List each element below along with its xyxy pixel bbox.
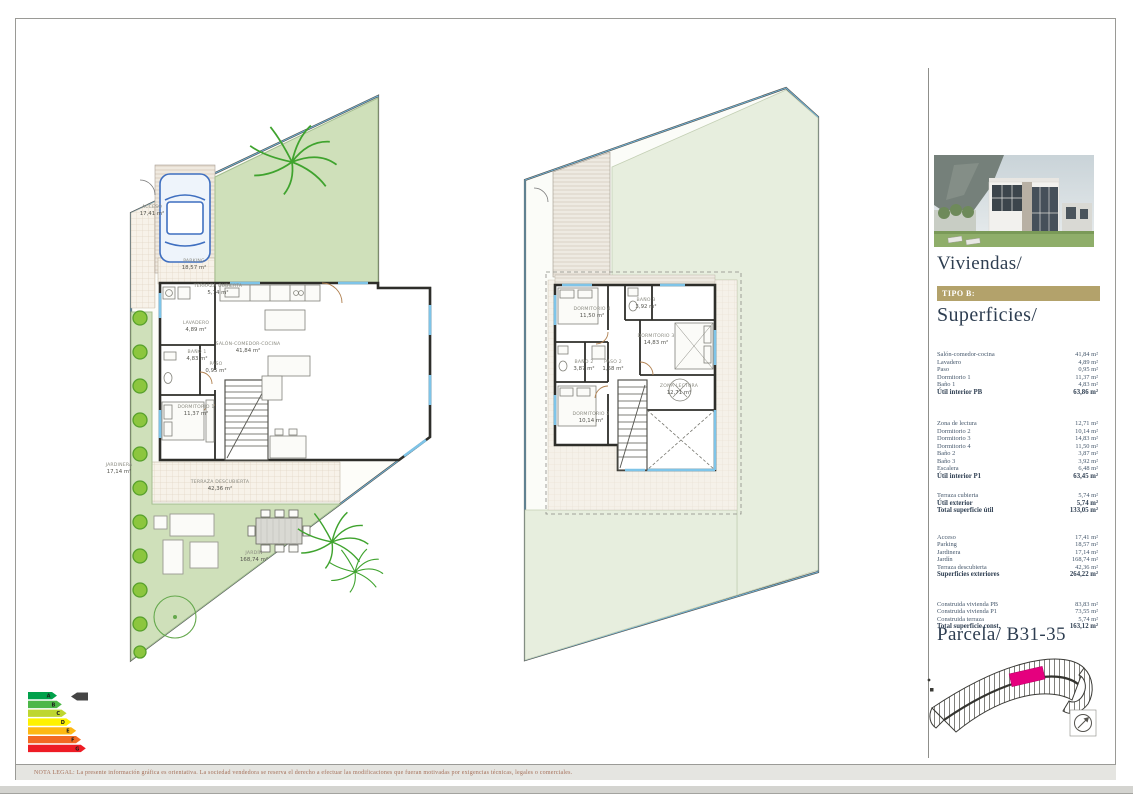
surface-row-total: Superficies exteriores264,22 m² bbox=[937, 571, 1098, 579]
surface-value: 4,83 m² bbox=[1078, 381, 1098, 389]
room-label-bano1: BAÑO 1 4,83 m² bbox=[186, 350, 207, 362]
room-name: BAÑO 1 bbox=[186, 350, 207, 356]
room-name: PARKING bbox=[182, 259, 207, 265]
ground-floor-plan bbox=[100, 80, 450, 680]
room-label-bano3: BAÑO 3 3,92 m² bbox=[635, 298, 656, 310]
garden-bottom bbox=[525, 510, 737, 660]
room-area: 11,37 m² bbox=[177, 411, 214, 417]
surface-label: Baño 2 bbox=[937, 450, 955, 458]
room-name: SALÓN-COMEDOR-COCINA bbox=[216, 342, 281, 348]
surface-value: 63,45 m² bbox=[1073, 473, 1098, 481]
room-label-zona-lectura: ZONA LECTURA 12,71 m² bbox=[660, 384, 698, 396]
surface-label: Total superficie útil bbox=[937, 507, 993, 515]
access-path bbox=[131, 202, 155, 308]
surface-row-total: Útil interior P163,45 m² bbox=[937, 473, 1098, 481]
staircase bbox=[618, 380, 647, 470]
room-area: 0,95 m² bbox=[205, 368, 226, 374]
surface-value: 41,84 m² bbox=[1075, 351, 1098, 359]
surface-row: Dormitorio 111,37 m² bbox=[937, 374, 1098, 382]
room-label-paso2: PASO 2 1,58 m² bbox=[602, 360, 623, 372]
surface-row: Parking18,57 m² bbox=[937, 541, 1098, 549]
room-label-jardin: JARDÍN 168,74 m² bbox=[240, 551, 268, 563]
bottom-band bbox=[0, 786, 1133, 794]
surface-row: Dormitorio 210,14 m² bbox=[937, 428, 1098, 436]
rating-pointer-icon bbox=[71, 693, 88, 701]
surface-value: 168,74 m² bbox=[1072, 556, 1098, 564]
surface-label: Lavadero bbox=[937, 359, 961, 367]
room-name: DORMITORIO 4 bbox=[573, 307, 610, 313]
svg-text:D: D bbox=[61, 720, 65, 726]
upper-terrace-strip bbox=[555, 275, 715, 284]
room-area: 168,74 m² bbox=[240, 557, 268, 563]
room-name: ACCESO bbox=[140, 205, 165, 211]
room-name: PASO 2 bbox=[602, 360, 623, 366]
surface-row: Zona de lectura12,71 m² bbox=[937, 420, 1098, 428]
room-label-terraza-cubierta: TERRAZA CUBIERTA 5,74 m² bbox=[194, 284, 242, 296]
gate-arc bbox=[140, 180, 155, 195]
parcela-title: Parcela/ B31-35 bbox=[937, 624, 1066, 646]
svg-text:E: E bbox=[66, 729, 70, 735]
energy-bar-a bbox=[28, 692, 57, 699]
site-marker bbox=[930, 688, 934, 692]
room-area: 4,83 m² bbox=[186, 356, 207, 362]
room-label-parking: PARKING 18,57 m² bbox=[182, 259, 207, 271]
room-area: 42,36 m² bbox=[191, 486, 249, 492]
surface-value: 17,14 m² bbox=[1075, 549, 1098, 557]
room-label-dormitorio3: DORMITORIO 3 14,83 m² bbox=[637, 334, 674, 346]
svg-text:F: F bbox=[71, 738, 74, 744]
svg-text:B: B bbox=[51, 702, 55, 708]
surface-value: 163,12 m² bbox=[1070, 623, 1098, 631]
surface-value: 264,22 m² bbox=[1070, 571, 1098, 579]
surface-row: Dormitorio 411,50 m² bbox=[937, 443, 1098, 451]
surfaces-section-parcela: Acceso17,41 m² Parking18,57 m² Jardinera… bbox=[937, 534, 1098, 579]
room-label-salon: SALÓN-COMEDOR-COCINA 41,84 m² bbox=[216, 342, 281, 354]
surface-value: 11,50 m² bbox=[1075, 443, 1098, 451]
disclaimer-text: NOTA LEGAL: La presente información gráf… bbox=[16, 770, 572, 776]
surface-value: 11,37 m² bbox=[1075, 374, 1098, 382]
surface-value: 83,83 m² bbox=[1075, 601, 1098, 609]
surface-value: 0,95 m² bbox=[1078, 366, 1098, 374]
surface-row: Acceso17,41 m² bbox=[937, 534, 1098, 542]
surface-row: Terraza descubierta42,36 m² bbox=[937, 564, 1098, 572]
room-label-jardinera: JARDINERA 17,14 m² bbox=[106, 463, 133, 475]
room-area: 41,84 m² bbox=[216, 348, 281, 354]
room-label-bano2: BAÑO 2 3,87 m² bbox=[573, 360, 594, 372]
surface-label: Terraza descubierta bbox=[937, 564, 987, 572]
site-marker-dot bbox=[928, 679, 931, 682]
superficies-title: Superficies/ bbox=[937, 304, 1037, 327]
surface-label: Parking bbox=[937, 541, 957, 549]
surface-value: 14,83 m² bbox=[1075, 435, 1098, 443]
surface-row: Construida vivienda PB83,83 m² bbox=[937, 601, 1098, 609]
energy-rating-chart: A B C D E F G bbox=[24, 690, 124, 756]
surface-label: Dormitorio 2 bbox=[937, 428, 971, 436]
room-area: 3,87 m² bbox=[573, 366, 594, 372]
surface-row: Terraza cubierta5,74 m² bbox=[937, 492, 1098, 500]
surface-label: Acceso bbox=[937, 534, 956, 542]
svg-text:A: A bbox=[47, 694, 51, 700]
room-area: 1,58 m² bbox=[602, 366, 623, 372]
garden-top bbox=[215, 98, 378, 284]
surface-label: Baño 3 bbox=[937, 458, 955, 466]
surface-row: Construida terraza5,74 m² bbox=[937, 616, 1098, 624]
compass-icon bbox=[1070, 710, 1096, 736]
room-area: 4,89 m² bbox=[183, 327, 209, 333]
palm-tree-icon bbox=[329, 549, 383, 592]
room-area: 3,92 m² bbox=[635, 304, 656, 310]
surface-label: Superficies exteriores bbox=[937, 571, 999, 579]
surface-value: 63,86 m² bbox=[1073, 389, 1098, 397]
surface-label: Zona de lectura bbox=[937, 420, 977, 428]
surface-value: 3,92 m² bbox=[1078, 458, 1098, 466]
room-name: DORMITORIO 1 bbox=[177, 405, 214, 411]
surface-row-total: Útil exterior5,74 m² bbox=[937, 500, 1098, 508]
surfaces-list: Salón-comedor-cocina41,84 m² Lavadero4,8… bbox=[937, 351, 1098, 631]
room-name: BAÑO 2 bbox=[573, 360, 594, 366]
room-area: 17,14 m² bbox=[106, 469, 133, 475]
room-area: 17,41 m² bbox=[140, 211, 165, 217]
surface-value: 6,48 m² bbox=[1078, 465, 1098, 473]
room-label-terraza-descubierta: TERRAZA DESCUBIERTA 42,36 m² bbox=[191, 480, 249, 492]
surface-label: Dormitorio 4 bbox=[937, 443, 971, 451]
site-plan bbox=[922, 650, 1107, 742]
disclaimer-bar: NOTA LEGAL: La presente información gráf… bbox=[16, 764, 1116, 780]
room-label-acceso: ACCESO 17,41 m² bbox=[140, 205, 165, 217]
surface-row: Jardinera17,14 m² bbox=[937, 549, 1098, 557]
surface-value: 17,41 m² bbox=[1075, 534, 1098, 542]
surface-row-total: Total superficie útil133,05 m² bbox=[937, 507, 1098, 515]
surface-row: Baño 14,83 m² bbox=[937, 381, 1098, 389]
room-label-dormitorio4: DORMITORIO 4 11,50 m² bbox=[573, 307, 610, 319]
surface-row: Paso0,95 m² bbox=[937, 366, 1098, 374]
staircase bbox=[225, 380, 268, 460]
surfaces-section-pb: Salón-comedor-cocina41,84 m² Lavadero4,8… bbox=[937, 351, 1098, 396]
energy-bar-b bbox=[28, 701, 62, 708]
room-name: ZONA LECTURA bbox=[660, 384, 698, 390]
first-floor-plan bbox=[500, 80, 840, 680]
surface-row: Construida vivienda P173,55 m² bbox=[937, 608, 1098, 616]
surface-value: 5,74 m² bbox=[1077, 500, 1098, 508]
surface-label: Dormitorio 3 bbox=[937, 435, 971, 443]
surface-label: Jardín bbox=[937, 556, 953, 564]
svg-text:C: C bbox=[56, 711, 60, 717]
surface-value: 5,74 m² bbox=[1078, 492, 1098, 500]
room-name: TERRAZA DESCUBIERTA bbox=[191, 480, 249, 486]
room-name: JARDINERA bbox=[106, 463, 133, 469]
surface-label: Útil interior P1 bbox=[937, 473, 981, 481]
room-label-dormitorio1: DORMITORIO 1 11,37 m² bbox=[177, 405, 214, 417]
room-label-paso: PASO 0,95 m² bbox=[205, 362, 226, 374]
room-area: 5,74 m² bbox=[194, 290, 242, 296]
room-area: 14,83 m² bbox=[637, 340, 674, 346]
surface-label: Terraza cubierta bbox=[937, 492, 978, 500]
surface-value: 133,05 m² bbox=[1070, 507, 1098, 515]
room-name: TERRAZA CUBIERTA bbox=[194, 284, 242, 290]
surface-value: 42,36 m² bbox=[1075, 564, 1098, 572]
villa-building bbox=[989, 178, 1059, 240]
room-name: DORMITORIO 3 bbox=[637, 334, 674, 340]
surface-row: Escalera6,48 m² bbox=[937, 465, 1098, 473]
surface-label: Construida vivienda P1 bbox=[937, 608, 997, 616]
surface-label: Jardinera bbox=[937, 549, 960, 557]
surface-row: Salón-comedor-cocina41,84 m² bbox=[937, 351, 1098, 359]
surface-label: Útil interior PB bbox=[937, 389, 982, 397]
car-icon bbox=[160, 174, 210, 262]
surface-row: Baño 23,87 m² bbox=[937, 450, 1098, 458]
energy-bar-c bbox=[28, 710, 67, 717]
surface-label: Construida vivienda PB bbox=[937, 601, 998, 609]
surface-label: Salón-comedor-cocina bbox=[937, 351, 995, 359]
room-label-dormitorio2: DORMITORIO 2 10,14 m² bbox=[572, 412, 609, 424]
surface-row: Lavadero4,89 m² bbox=[937, 359, 1098, 367]
room-label-lavadero: LAVADERO 4,89 m² bbox=[183, 321, 209, 333]
surface-value: 4,89 m² bbox=[1078, 359, 1098, 367]
parking-roof bbox=[553, 152, 610, 277]
surface-label: Paso bbox=[937, 366, 949, 374]
room-area: 12,71 m² bbox=[660, 390, 698, 396]
surface-value: 5,74 m² bbox=[1078, 616, 1098, 624]
room-name: DORMITORIO 2 bbox=[572, 412, 609, 418]
surface-row: Baño 33,92 m² bbox=[937, 458, 1098, 466]
surface-row: Dormitorio 314,83 m² bbox=[937, 435, 1098, 443]
surface-label: Baño 1 bbox=[937, 381, 955, 389]
surface-value: 73,55 m² bbox=[1075, 608, 1098, 616]
surface-label: Escalera bbox=[937, 465, 959, 473]
surfaces-section-p1: Zona de lectura12,71 m² Dormitorio 210,1… bbox=[937, 420, 1098, 480]
surface-value: 10,14 m² bbox=[1075, 428, 1098, 436]
svg-text:G: G bbox=[75, 746, 79, 752]
surfaces-section-exterior: Terraza cubierta5,74 m² Útil exterior5,7… bbox=[937, 492, 1098, 515]
surface-label: Dormitorio 1 bbox=[937, 374, 971, 382]
room-area: 18,57 m² bbox=[182, 265, 207, 271]
surface-value: 3,87 m² bbox=[1078, 450, 1098, 458]
tipo-banner: TIPO B: bbox=[937, 286, 1100, 301]
bed-dormitorio3 bbox=[675, 323, 713, 369]
surface-row: Jardín168,74 m² bbox=[937, 556, 1098, 564]
room-name: BAÑO 3 bbox=[635, 298, 656, 304]
surface-row-total: Útil interior PB63,86 m² bbox=[937, 389, 1098, 397]
room-area: 10,14 m² bbox=[572, 418, 609, 424]
surface-value: 18,57 m² bbox=[1075, 541, 1098, 549]
surface-label: Útil exterior bbox=[937, 500, 973, 508]
villa-photo bbox=[934, 155, 1094, 247]
room-area: 11,50 m² bbox=[573, 313, 610, 319]
viviendas-title: Viviendas/ bbox=[937, 253, 1022, 275]
parcel-strip bbox=[930, 659, 1092, 732]
room-name: LAVADERO bbox=[183, 321, 209, 327]
surface-value: 12,71 m² bbox=[1075, 420, 1098, 428]
surface-label: Construida terraza bbox=[937, 616, 984, 624]
plan-sheet: TERRAZA CUBIERTA 5,74 m² LAVADERO 4,89 m… bbox=[0, 0, 1133, 800]
